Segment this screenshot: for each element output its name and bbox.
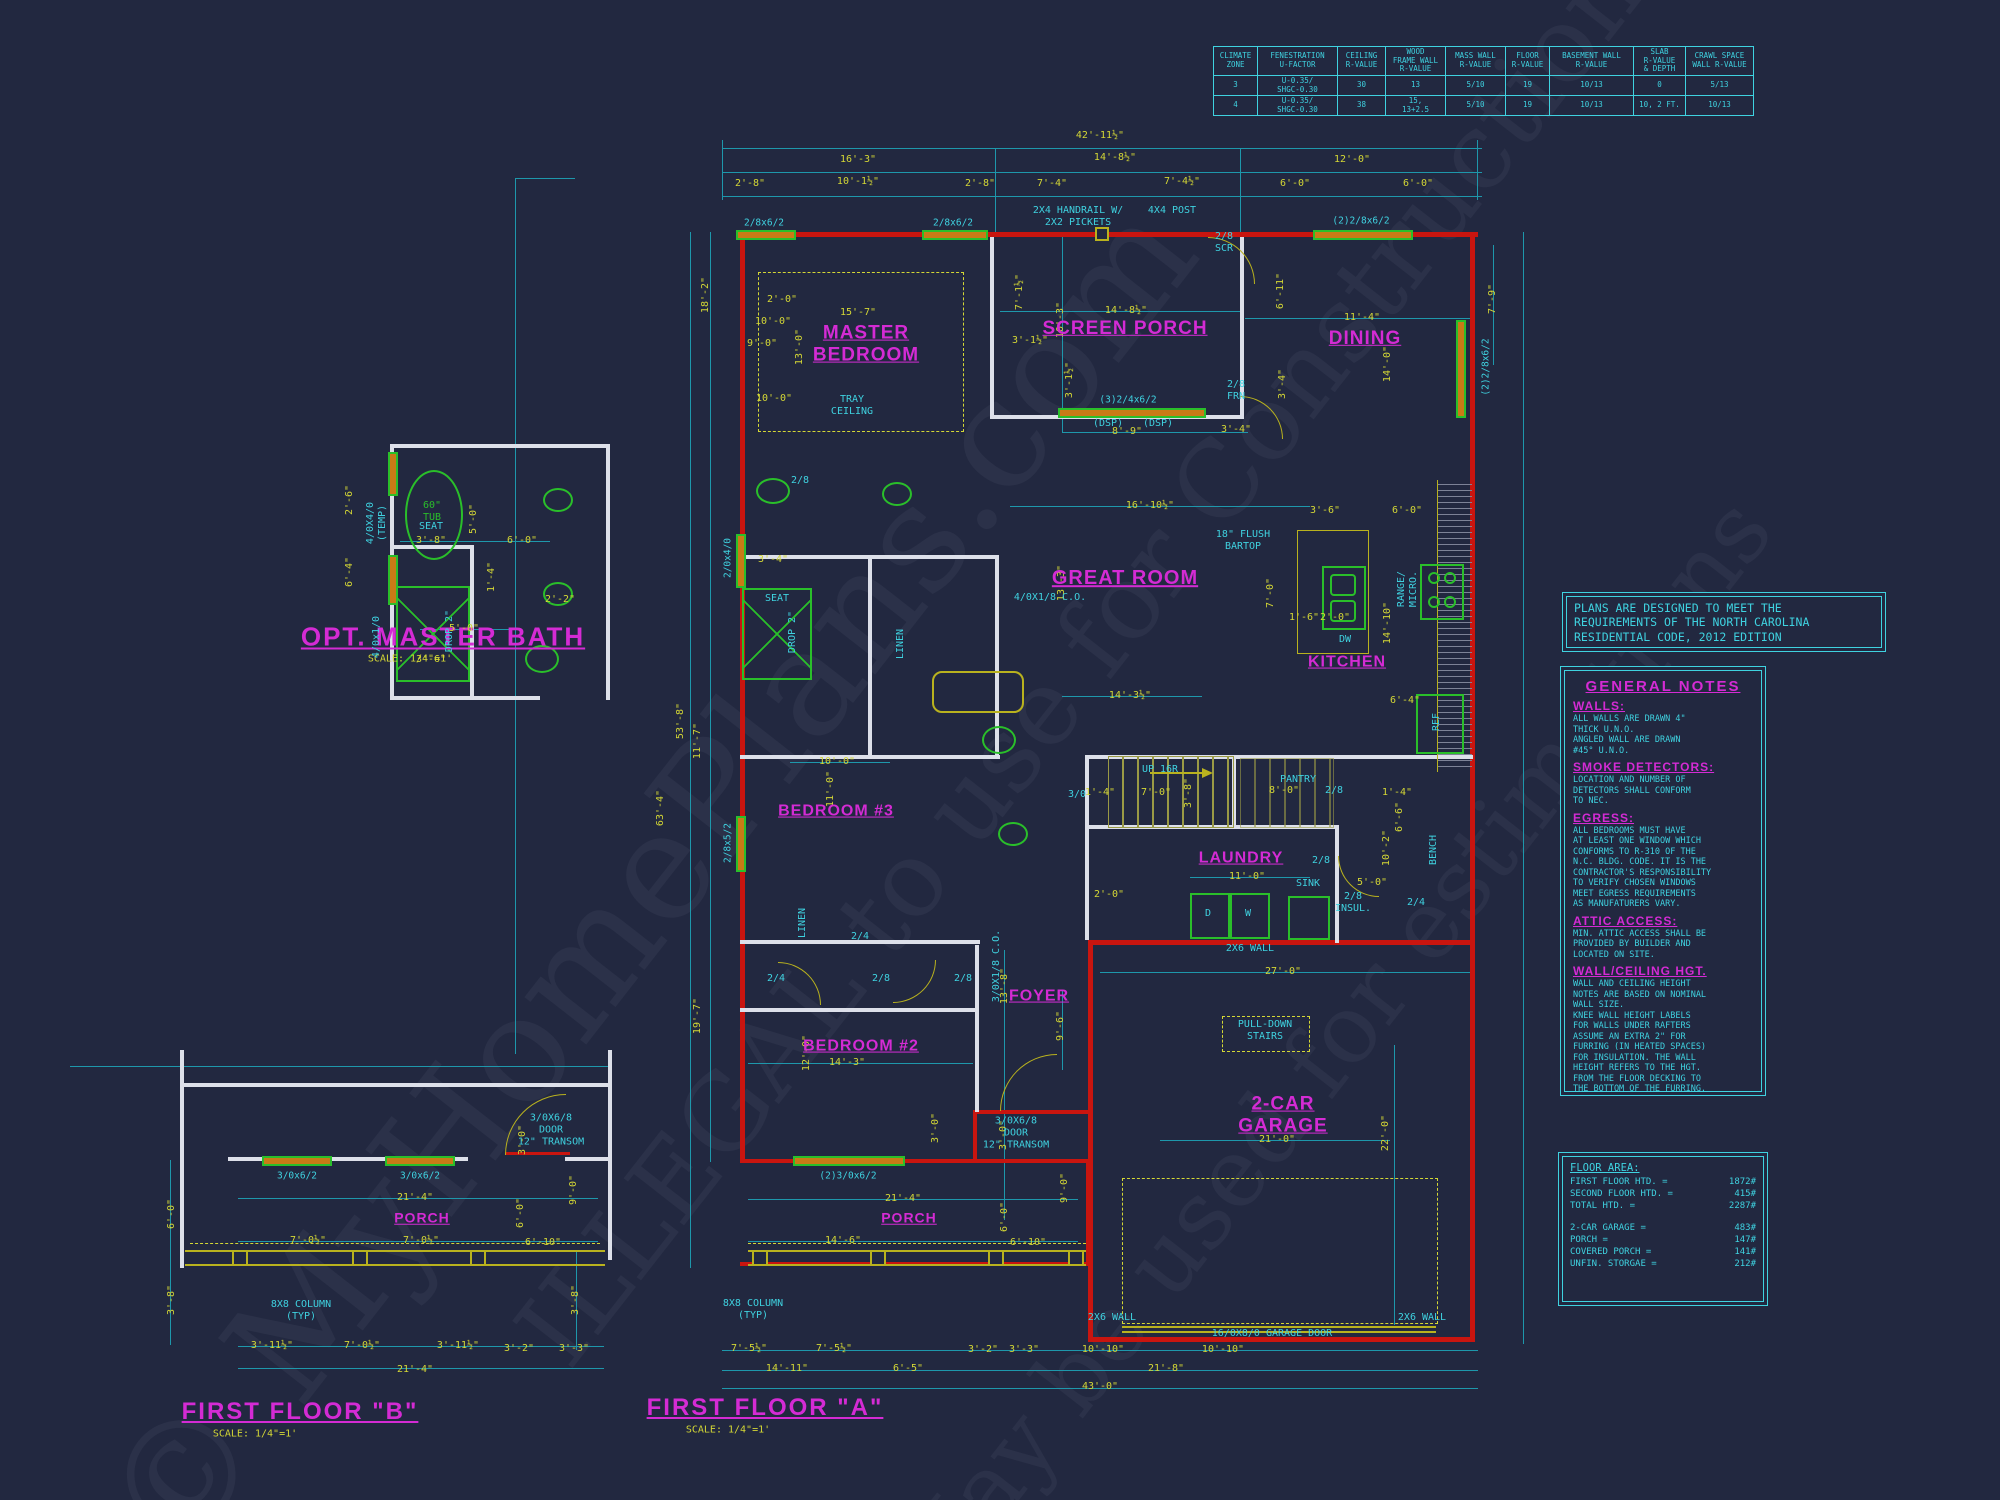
- garage-door: [1122, 1331, 1436, 1333]
- dim-line: [238, 1241, 598, 1242]
- dim-line: [790, 762, 890, 763]
- floor-area-value: 141#: [1734, 1246, 1756, 1258]
- dim-line: [690, 232, 691, 1268]
- table-cell: 13: [1386, 75, 1446, 95]
- dim-line: [722, 1388, 1478, 1389]
- wall-interior: [1085, 755, 1089, 940]
- refrigerator-icon: [1416, 694, 1464, 754]
- window: [793, 1156, 905, 1166]
- window-size-label: (2)3/0x6/2: [819, 1170, 876, 1181]
- sink-icon: [882, 482, 912, 506]
- washer-icon: [1230, 893, 1270, 939]
- code-requirements-box: PLANS ARE DESIGNED TO MEET THE REQUIREME…: [1562, 592, 1886, 652]
- porch-column: [988, 1250, 1004, 1266]
- dimension-label: 7'-5½": [731, 1343, 767, 1355]
- blueprint-canvas: © MyHomePlans.com ILLEGAL to use for Con…: [0, 0, 2000, 1500]
- room-label: GREAT ROOM: [1052, 567, 1198, 591]
- dimension-label: 6'-0": [1392, 505, 1422, 517]
- room-label: 2-CAR GARAGE: [1238, 1094, 1327, 1139]
- dim-line: [170, 1160, 171, 1345]
- window: [736, 534, 746, 588]
- notes-heading: WALLS:: [1573, 699, 1753, 713]
- garage-door: [1122, 1326, 1436, 1328]
- wall-exterior: [1088, 940, 1475, 945]
- porch-column: [1068, 1250, 1084, 1266]
- window: [736, 230, 796, 240]
- room-label: BEDROOM #3: [778, 803, 894, 822]
- dimension-label: 7'-4½": [1164, 176, 1200, 188]
- annotation-label: 2/8: [791, 475, 809, 487]
- floor-area-label: UNFIN. STORGAE =: [1570, 1258, 1657, 1270]
- annotation-label: SINK: [1296, 878, 1320, 890]
- notes-heading: ATTIC ACCESS:: [1573, 914, 1753, 928]
- dim-line: [722, 148, 1482, 149]
- floor-area-box: FLOOR AREA: FIRST FLOOR HTD. =1872# SECO…: [1558, 1152, 1768, 1306]
- table-header: WOOD FRAME WALL R-VALUE: [1386, 47, 1446, 76]
- dimension-label: 53'-8": [675, 703, 687, 739]
- floor-area-value: 2287#: [1729, 1200, 1756, 1212]
- dim-line: [710, 232, 711, 1162]
- dimension-label: 3'-2": [504, 1343, 534, 1355]
- window-size-label: 3/0x6/2: [400, 1170, 440, 1181]
- dimension-label: 5'-0": [468, 504, 480, 534]
- dimension-label: 13'-3": [1056, 565, 1068, 601]
- annotation-label: 2/8: [872, 973, 890, 985]
- dim-line: [1062, 432, 1248, 433]
- dimension-label: 42'-11½": [1076, 130, 1124, 142]
- dimension-label: 3'-1½": [1012, 335, 1048, 347]
- dimension-label: 7'-4": [1037, 178, 1067, 190]
- annotation-label: 3/0X6/8 DOOR 12" TRANSOM: [983, 1115, 1049, 1150]
- annotation-label: 2/8: [954, 973, 972, 985]
- dimension-label: 6'-11": [1275, 273, 1287, 309]
- room-label: PORCH: [394, 1210, 450, 1227]
- porch-column: [470, 1250, 486, 1266]
- table-header: FENESTRATION U-FACTOR: [1258, 47, 1338, 76]
- wall-exterior: [1088, 940, 1093, 1342]
- window-size-label: 2/8x6/2: [744, 217, 784, 228]
- wall-exterior: [1088, 1337, 1475, 1342]
- dimension-label: 6'-0": [515, 1198, 527, 1228]
- porch-edge: [185, 1250, 605, 1252]
- table-cell: 10, 2 FT.: [1634, 96, 1686, 116]
- dimension-label: 6'-0": [1280, 178, 1310, 190]
- dim-line: [722, 196, 1482, 197]
- dimension-label: 3'-4": [1277, 369, 1289, 399]
- 4x4-post: [1095, 227, 1109, 241]
- window: [385, 1156, 455, 1166]
- toilet-icon: [982, 726, 1016, 754]
- dimension-label: 10'-3": [1055, 302, 1067, 338]
- first-floor-a-title: FIRST FLOOR "A": [647, 1394, 884, 1422]
- room-label: SCREEN PORCH: [1042, 318, 1207, 340]
- table-cell: U-0.35/ SHGC-0.30: [1258, 96, 1338, 116]
- dimension-label: 10'-1½": [837, 176, 879, 188]
- annotation-label: 2/8: [1312, 855, 1330, 867]
- porch-column: [752, 1250, 768, 1266]
- window-size-label: (2)2/8x6/2: [1480, 338, 1491, 395]
- burner: [1428, 572, 1440, 584]
- dimension-label: 6'-5": [893, 1363, 923, 1375]
- floor-area-label: FIRST FLOOR HTD. =: [1570, 1176, 1668, 1188]
- tray-ceiling-outline: [758, 272, 964, 432]
- dimension-label: 9'-0": [568, 1175, 580, 1205]
- wall-interior: [180, 1083, 612, 1087]
- shower: [742, 588, 812, 680]
- floor-area-value: 483#: [1734, 1222, 1756, 1234]
- notes-heading: WALL/CEILING HGT.: [1573, 964, 1753, 978]
- door-arc: [893, 960, 936, 1003]
- table-cell: 5/10: [1446, 96, 1506, 116]
- annotation-label: (DSP): [1093, 418, 1123, 430]
- wall-interior: [606, 444, 610, 700]
- door-arc: [505, 1094, 566, 1155]
- table-cell: 10/13: [1686, 96, 1754, 116]
- laundry-sink: [1288, 896, 1330, 940]
- annotation-label: 18" FLUSH BARTOP: [1216, 529, 1270, 553]
- dimension-label: 11'-7": [692, 723, 704, 759]
- wall-interior: [390, 444, 610, 448]
- notes-title: GENERAL NOTES: [1573, 678, 1753, 695]
- sink-icon: [543, 488, 573, 512]
- sink-icon: [543, 582, 573, 606]
- dimension-label: 43'-0": [1082, 1381, 1118, 1393]
- garage-door-dashed: [1122, 1178, 1438, 1324]
- stairs-arrow-line: [1150, 772, 1202, 774]
- pantry-shelves: [1240, 758, 1334, 828]
- table-cell: 5/10: [1446, 75, 1506, 95]
- floor-area-label: SECOND FLOOR HTD. =: [1570, 1188, 1673, 1200]
- annotation-label: LINEN: [797, 908, 809, 938]
- dim-line: [1160, 1140, 1390, 1141]
- toilet-icon: [756, 478, 790, 504]
- dimension-label: 3'-8": [166, 1285, 178, 1315]
- wall-interior: [1335, 825, 1339, 943]
- window-size-label: (3)2/4x6/2: [1099, 394, 1156, 405]
- table-header: CRAWL SPACE WALL R-VALUE: [1686, 47, 1754, 76]
- table-cell: 38: [1338, 96, 1386, 116]
- dim-line: [515, 178, 516, 1054]
- first-floor-b-scale: SCALE: 1/4"=1': [213, 1429, 297, 1440]
- dim-line: [1062, 990, 1063, 1070]
- table-cell: 3: [1214, 75, 1258, 95]
- table-cell: 10/13: [1550, 75, 1634, 95]
- dimension-label: 2'-0": [1094, 889, 1124, 901]
- wall-interior: [740, 940, 980, 944]
- code-requirements-text: PLANS ARE DESIGNED TO MEET THE REQUIREME…: [1566, 596, 1882, 648]
- window: [388, 452, 398, 496]
- dim-line: [722, 1370, 1478, 1371]
- stairs: [1108, 756, 1234, 828]
- dimension-label: 2'-6": [344, 485, 356, 515]
- dim-line: [1245, 318, 1473, 319]
- dim-line: [722, 140, 723, 200]
- dimension-label: 16'-3": [840, 154, 876, 166]
- sink-bowl: [1330, 574, 1356, 596]
- burner: [1444, 596, 1456, 608]
- dim-line: [515, 178, 575, 179]
- annotation-label: 3/0X1/8 C.O.: [991, 930, 1003, 1002]
- table-header: SLAB R-VALUE & DEPTH: [1634, 47, 1686, 76]
- dim-line: [1010, 506, 1310, 507]
- notes-body: ALL WALLS ARE DRAWN 4" THICK U.N.O. ANGL…: [1573, 714, 1753, 756]
- watermark-text: © MyHomePlans.com: [69, 171, 1231, 1500]
- dimension-label: 7'-1½": [1014, 274, 1026, 310]
- first-floor-a-scale: SCALE: 1/4"=1': [686, 1425, 770, 1436]
- annotation-label: 8X8 COLUMN (TYP): [723, 1298, 783, 1322]
- floor-area-value: 415#: [1734, 1188, 1756, 1200]
- window: [1058, 408, 1206, 418]
- dimension-label: 12'-0": [1334, 154, 1370, 166]
- dimension-label: 7'-5½": [816, 1343, 852, 1355]
- window: [736, 816, 746, 872]
- dimension-label: 6'-0": [1403, 178, 1433, 190]
- dim-line: [748, 1199, 1078, 1200]
- dimension-label: 7'-0": [1265, 578, 1277, 608]
- room-label: PORCH: [881, 1210, 937, 1227]
- annotation-label: 3/0: [1068, 789, 1086, 801]
- watermark-text: ILLEGAL to use for Construction: [493, 0, 1668, 1388]
- climate-zone-table: CLIMATE ZONE FENESTRATION U-FACTOR CEILI…: [1213, 46, 1754, 116]
- window: [262, 1156, 332, 1166]
- dim-line: [1523, 232, 1524, 1344]
- dim-line: [748, 1241, 1078, 1242]
- stairs-arrow: [1202, 768, 1213, 778]
- wall-interior: [740, 1008, 977, 1012]
- opt-master-bath-title: OPT. MASTER BATH: [301, 622, 585, 653]
- dim-line: [238, 1368, 604, 1369]
- dimension-label: 6'-4": [344, 557, 356, 587]
- bathtub: [932, 671, 1024, 713]
- porch-edge: [748, 1250, 1086, 1252]
- annotation-label: RANGE/ MICRO.: [1396, 571, 1420, 607]
- wall-interior: [868, 555, 872, 759]
- table-cell: 19: [1506, 75, 1550, 95]
- floor-area-label: COVERED PORCH =: [1570, 1246, 1651, 1258]
- wall-interior: [470, 545, 474, 696]
- notes-body: ALL BEDROOMS MUST HAVE AT LEAST ONE WIND…: [1573, 826, 1753, 910]
- dimension-label: 9'-6": [1055, 1011, 1067, 1041]
- annotation-label: 8X8 COLUMN (TYP): [271, 1299, 331, 1323]
- dimension-label: 3'-6": [1310, 505, 1340, 517]
- window: [922, 230, 988, 240]
- dimension-label: 2'-8": [965, 178, 995, 190]
- porch-dashed-line: [190, 1243, 600, 1244]
- first-floor-b-title: FIRST FLOOR "B": [182, 1398, 419, 1426]
- dimension-label: 21'-4": [397, 1364, 433, 1376]
- dimension-label: 63'-4": [655, 790, 667, 826]
- dim-line: [722, 172, 1482, 173]
- dimension-label: 19'-7": [692, 998, 704, 1034]
- door-arc: [1208, 237, 1255, 284]
- dimension-label: 6'-0": [166, 1199, 178, 1229]
- dimension-label: 10'-2": [1381, 830, 1393, 866]
- annotation-label: 2X4 HANDRAIL W/ 2X2 PICKETS: [1033, 205, 1123, 229]
- notes-body: LOCATION AND NUMBER OF DETECTORS SHALL C…: [1573, 775, 1753, 807]
- burner: [1428, 596, 1440, 608]
- general-notes-panel: GENERAL NOTES WALLS: ALL WALLS ARE DRAWN…: [1560, 666, 1766, 1096]
- notes-body: WALL AND CEILING HEIGHT NOTES ARE BASED …: [1573, 979, 1753, 1095]
- room-label: FOYER: [1009, 988, 1069, 1007]
- floor-area-value: 1872#: [1729, 1176, 1756, 1188]
- floor-area-title: FLOOR AREA:: [1570, 1162, 1756, 1174]
- dimension-label: 13'-8": [999, 968, 1011, 1004]
- notes-heading: EGRESS:: [1573, 811, 1753, 825]
- dim-line: [1190, 877, 1310, 878]
- annotation-label: (DSP): [1143, 418, 1173, 430]
- table-cell: 0: [1634, 75, 1686, 95]
- floor-area-label: PORCH =: [1570, 1234, 1608, 1246]
- table-cell: 10/13: [1550, 96, 1634, 116]
- window-size-label: 2/8x6/2: [933, 217, 973, 228]
- floor-area-label: 2-CAR GARAGE =: [1570, 1222, 1646, 1234]
- table-cell: 15, 13+2.5: [1386, 96, 1446, 116]
- dimension-label: 1'-4": [486, 562, 498, 592]
- dimension-label: 6'-0": [999, 1202, 1011, 1232]
- window-size-label: 3/0x6/2: [277, 1170, 317, 1181]
- annotation-label: BENCH: [1428, 835, 1440, 865]
- range-icon: [1420, 564, 1464, 620]
- wall-interior: [565, 1157, 610, 1161]
- wall-interior: [975, 945, 979, 1112]
- dimension-label: 12'-0": [801, 1035, 813, 1071]
- room-label: DINING: [1329, 328, 1402, 350]
- porch-column: [870, 1250, 886, 1266]
- table-cell: U-0.35/ SHGC-0.30: [1258, 75, 1338, 95]
- dimension-label: 14'-8½": [1094, 152, 1136, 164]
- annotation-label: LINEN: [895, 629, 907, 659]
- dimension-label: 21'-8": [1148, 1363, 1184, 1375]
- sink-icon: [998, 822, 1028, 846]
- dim-line: [238, 1198, 598, 1199]
- annotation-label: 4/0X1/8 C.O.: [1014, 592, 1086, 604]
- door-arc: [1000, 1054, 1057, 1111]
- wall-exterior: [740, 232, 745, 1163]
- dim-line: [1000, 311, 1240, 312]
- wall-porch: [1086, 1163, 1090, 1266]
- table-header: CLIMATE ZONE: [1214, 47, 1258, 76]
- porch-dashed-line: [748, 1243, 1086, 1244]
- dimension-label: 6'-6": [1394, 802, 1406, 832]
- window: [1456, 320, 1466, 418]
- wall-interior: [608, 1050, 612, 1260]
- door-arc: [778, 962, 821, 1005]
- dim-line: [238, 1346, 604, 1347]
- table-header: FLOOR R-VALUE: [1506, 47, 1550, 76]
- door-arc: [1338, 856, 1379, 897]
- opt-master-bath-scale: SCALE: 1/4"=1': [368, 654, 452, 665]
- dimension-label: 1'-4": [1382, 787, 1412, 799]
- dim-line: [722, 1350, 1478, 1351]
- wall-exterior: [1470, 232, 1475, 1342]
- table-cell: 5/13: [1686, 75, 1754, 95]
- table-header: MASS WALL R-VALUE: [1446, 47, 1506, 76]
- table-cell: 4: [1214, 96, 1258, 116]
- dim-line: [1062, 696, 1202, 697]
- dimension-label: 3'-3": [559, 1343, 589, 1355]
- annotation-label: 2/4: [1407, 897, 1425, 909]
- dim-line: [1493, 245, 1494, 365]
- dimension-label: 3'-1½": [1064, 362, 1076, 398]
- table-header: CEILING R-VALUE: [1338, 47, 1386, 76]
- garden-tub: [405, 470, 463, 560]
- porch-edge: [185, 1264, 605, 1266]
- window-size-label: 2/0x4/0: [722, 538, 733, 578]
- dim-line: [995, 148, 996, 232]
- table-cell: 19: [1506, 96, 1550, 116]
- porch-column: [232, 1250, 248, 1266]
- table-cell: 30: [1338, 75, 1386, 95]
- window-size-label: 2/8x5/2: [722, 823, 733, 863]
- dim-line: [1240, 148, 1241, 232]
- dimension-label: 14'-11": [766, 1363, 808, 1375]
- burner: [1444, 572, 1456, 584]
- wall-interior: [990, 237, 994, 417]
- notes-heading: SMOKE DETECTORS:: [1573, 760, 1753, 774]
- floor-area-value: 147#: [1734, 1234, 1756, 1246]
- dimension-label: 14'-0": [1382, 346, 1394, 382]
- dim-line: [748, 1063, 973, 1064]
- dimension-label: 22'-0": [1380, 1115, 1392, 1151]
- dryer-icon: [1190, 893, 1230, 939]
- dim-line: [70, 1066, 610, 1067]
- wall-exterior: [973, 1110, 977, 1163]
- floor-area-label: TOTAL HTD. =: [1570, 1200, 1635, 1212]
- annotation-label: 4/0X4/0 (TEMP): [365, 502, 389, 544]
- door-arc: [1240, 396, 1283, 439]
- dim-line: [1100, 972, 1470, 973]
- dimension-label: 14'-10": [1382, 602, 1394, 644]
- dim-line: [1477, 140, 1478, 200]
- room-label: BEDROOM #2: [803, 1038, 919, 1057]
- window-size-label: (2)2/8x6/2: [1332, 215, 1389, 226]
- window: [1313, 230, 1413, 240]
- pull-down-stairs-outline: [1222, 1016, 1310, 1052]
- room-label: KITCHEN: [1308, 654, 1386, 673]
- porch-edge: [748, 1264, 1086, 1266]
- dimension-label: 11'-0": [825, 771, 837, 807]
- room-label: LAUNDRY: [1199, 850, 1284, 869]
- notes-body: MIN. ATTIC ACCESS SHALL BE PROVIDED BY B…: [1573, 929, 1753, 961]
- sink-bowl: [1330, 600, 1356, 622]
- dim-line: [1062, 232, 1063, 432]
- table-header: BASEMENT WALL R-VALUE: [1550, 47, 1634, 76]
- annotation-label: 4X4 POST: [1148, 205, 1196, 217]
- floor-area-value: 212#: [1734, 1258, 1756, 1270]
- dimension-label: 2'-8": [735, 178, 765, 190]
- porch-column: [352, 1250, 368, 1266]
- wall-interior: [390, 696, 540, 700]
- dimension-label: 3'-0": [930, 1113, 942, 1143]
